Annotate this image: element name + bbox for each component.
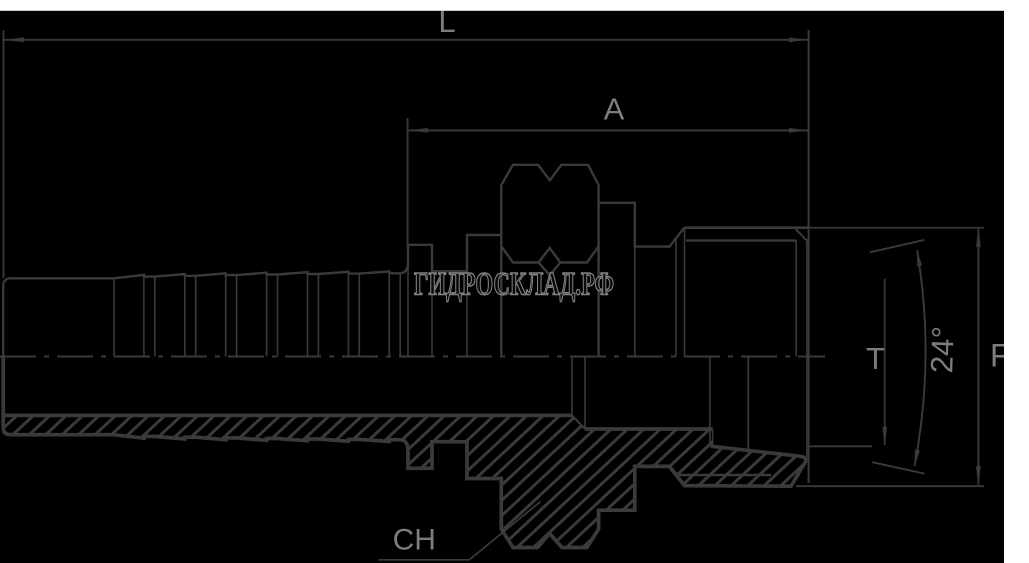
svg-text:T: T: [866, 341, 885, 376]
svg-text:ГИДРОСКЛАД.РФ: ГИДРОСКЛАД.РФ: [414, 267, 614, 303]
svg-text:24°: 24°: [924, 326, 961, 374]
svg-text:CH: CH: [393, 524, 436, 557]
svg-text:A: A: [604, 92, 625, 127]
svg-text:L: L: [438, 4, 455, 39]
